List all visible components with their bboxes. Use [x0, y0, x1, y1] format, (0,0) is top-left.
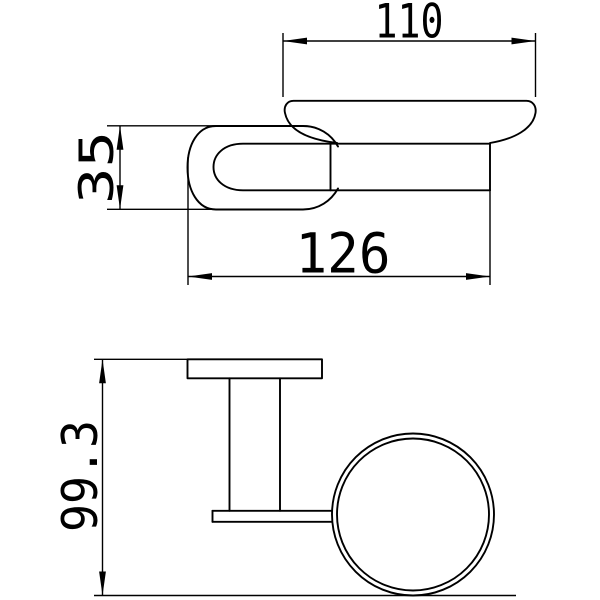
ring-outer-circle: [332, 434, 494, 596]
dimension-label-overall-height: 99.3: [52, 420, 109, 532]
side-view: 99.3: [52, 359, 516, 595]
dimension-overall-depth: 126: [188, 157, 490, 286]
arrowhead-left: [188, 273, 212, 280]
drawing-svg: 110 35 126: [0, 0, 600, 600]
arrowhead-bottom: [99, 572, 106, 596]
technical-drawing: 110 35 126: [0, 0, 600, 600]
dimension-bracket-height: 35: [70, 126, 219, 210]
top-view: 110 35 126: [70, 0, 536, 286]
bracket-inner-outline: [214, 144, 491, 191]
dimension-label-dish-width: 110: [375, 0, 444, 50]
dimension-label-overall-depth: 126: [296, 222, 391, 286]
dimension-dish-width: 110: [283, 0, 536, 97]
arrowhead-right: [466, 273, 490, 280]
wall-plate-outline: [188, 359, 323, 378]
dish-outline: [285, 101, 536, 143]
dimension-overall-height: 99.3: [52, 359, 516, 595]
arrowhead-top: [99, 359, 106, 383]
ring-inner-circle: [337, 439, 489, 591]
dimension-label-bracket-height: 35: [70, 131, 125, 204]
arrowhead-left: [283, 38, 307, 45]
arrowhead-right: [512, 38, 536, 45]
